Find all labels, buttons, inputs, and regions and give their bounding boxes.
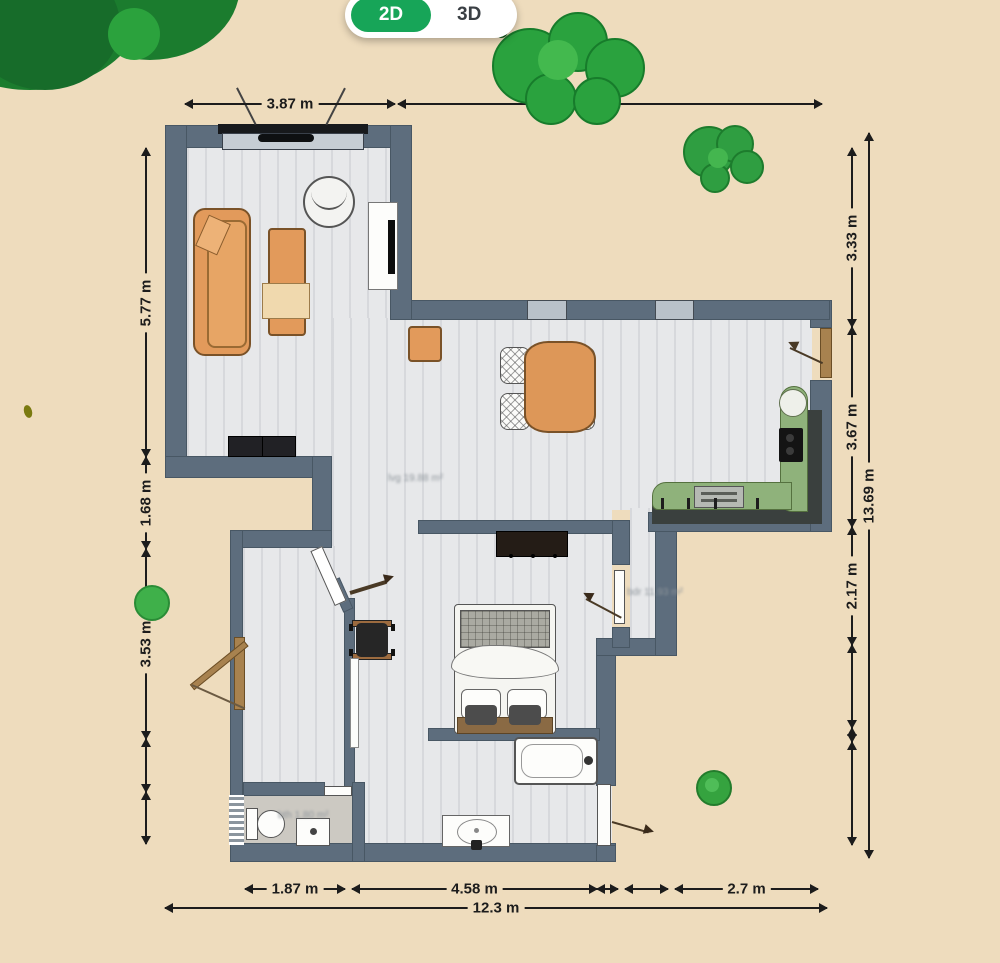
wc-sink[interactable] <box>296 818 330 846</box>
tree-corner-highlight <box>108 8 160 60</box>
wall-bedroom-right-a <box>612 520 630 565</box>
door-entrance-arrow <box>643 824 660 838</box>
dim-left-4 <box>145 739 147 792</box>
bush-left[interactable] <box>134 585 170 621</box>
office-chair-wheel-2 <box>391 624 395 631</box>
door-entrance[interactable] <box>597 784 611 846</box>
dim-bottom-3 <box>597 888 618 890</box>
cabinet-handle-4 <box>756 498 759 509</box>
coffee-bench[interactable] <box>268 228 306 336</box>
dresser-knob-3 <box>553 554 557 558</box>
dim-left-5 <box>145 792 147 844</box>
room-label-living: lvg 19.88 m² <box>388 473 443 484</box>
vanity-sink[interactable] <box>442 815 510 847</box>
tree-top-blob-5 <box>573 77 621 125</box>
dim-right-total: 13.69 m <box>868 133 870 858</box>
dim-left-2: 1.68 m <box>145 457 147 549</box>
toggle-option-2d[interactable]: 2D <box>351 0 431 32</box>
dim-right-2: 3.67 m <box>851 327 853 527</box>
swivel-chair-curve <box>311 190 347 210</box>
sideboard-divider <box>262 437 263 456</box>
tree-right-blob-3 <box>730 150 764 184</box>
dim-left-1: 5.77 m <box>145 148 147 457</box>
bathtub-inner <box>521 744 583 778</box>
dim-bottom-5: 2.7 m <box>675 888 818 890</box>
wall-right-lower-a <box>596 648 616 786</box>
door-balcony[interactable] <box>820 328 832 378</box>
wall-office-top <box>230 530 332 548</box>
window-wc[interactable] <box>229 795 244 845</box>
tree-top-highlight <box>538 40 578 80</box>
window-opening-line-left <box>236 88 256 125</box>
bathtub-faucet <box>584 756 593 765</box>
vanity-drain <box>474 828 479 833</box>
toggle-option-3d[interactable]: 3D <box>457 4 481 26</box>
door-wc[interactable] <box>324 786 352 796</box>
wall-bottom <box>230 843 616 862</box>
appliance-vent <box>701 492 737 495</box>
dim-right-1: 3.33 m <box>851 148 853 327</box>
cabinet-handle-1 <box>661 498 664 509</box>
dining-table[interactable] <box>524 341 596 433</box>
dresser-knob-1 <box>509 554 513 558</box>
wall-notch-vertical <box>655 512 677 656</box>
bathtub[interactable] <box>514 737 598 785</box>
dim-top-width: 3.87 m <box>185 103 395 105</box>
dim-right-5 <box>851 728 853 742</box>
dim-bottom-1: 1.87 m <box>245 888 345 890</box>
room-label-wc: bth 1.80 m² <box>278 810 329 821</box>
office-chair-wheel-4 <box>391 649 395 656</box>
tree-corner-blob-3 <box>0 0 120 90</box>
kitchen-sink[interactable] <box>779 389 807 417</box>
swivel-chair[interactable] <box>303 176 355 228</box>
tree-top-blob-4 <box>525 73 577 125</box>
wc-sink-tap <box>310 828 317 835</box>
bed-cushion-right <box>509 705 541 725</box>
burner-2 <box>786 447 794 455</box>
office-chair-wheel-3 <box>349 649 353 656</box>
wall-right-lower-b <box>596 845 616 862</box>
cabinet-handle-3 <box>714 498 717 509</box>
dim-right-3: 2.17 m <box>851 527 853 645</box>
kitchen-appliance[interactable] <box>694 486 744 508</box>
vanity-tap <box>471 840 482 850</box>
office-chair-seat <box>356 623 388 657</box>
cooktop[interactable] <box>779 428 803 462</box>
dim-right-4 <box>851 645 853 728</box>
bench-tray[interactable] <box>262 283 310 319</box>
dim-left-3: 3.53 m <box>145 549 147 739</box>
window-opening-line-right <box>325 88 345 125</box>
view-mode-toggle: 2D 3D <box>345 0 517 38</box>
wall-living-left <box>165 125 187 478</box>
office-chair-wheel-1 <box>349 624 353 631</box>
cabinet-handle-2 <box>687 498 690 509</box>
window-dining-1[interactable] <box>527 300 567 320</box>
curtain-rail[interactable] <box>258 134 314 142</box>
dim-right-6 <box>851 742 853 845</box>
office-chair[interactable] <box>352 618 392 662</box>
sofa[interactable] <box>193 208 251 356</box>
bush-bottom-right[interactable] <box>696 770 732 806</box>
dim-bottom-2: 4.58 m <box>352 888 597 890</box>
door-leaf-folded[interactable] <box>350 658 359 748</box>
dresser-knob-2 <box>531 554 535 558</box>
floorplan-canvas: lvg 19.88 m² bdr 11.93 m² bth 1.80 m² 3.… <box>0 0 1000 963</box>
wall-wc-right <box>352 782 365 862</box>
olive-leaf <box>22 404 33 419</box>
bed-headboard <box>460 610 550 648</box>
bed[interactable] <box>454 604 556 734</box>
dining-side-cabinet[interactable] <box>408 326 442 362</box>
appliance-vent2 <box>701 499 737 502</box>
dim-bottom-4 <box>625 888 668 890</box>
window-dining-2[interactable] <box>655 300 694 320</box>
room-label-bedroom: bdr 11.93 m² <box>627 587 683 598</box>
burner-1 <box>786 434 794 442</box>
bed-cushion-left <box>465 705 497 725</box>
bush-bottom-right-core <box>705 778 719 792</box>
dim-bottom-total: 12.3 m <box>165 907 827 909</box>
wall-dining-top <box>390 300 830 320</box>
wall-bedroom-right-b <box>612 627 630 648</box>
wall-wc-top <box>243 782 325 796</box>
dresser[interactable] <box>496 531 568 557</box>
tv[interactable] <box>388 220 395 274</box>
tree-right-highlight <box>708 148 728 168</box>
sideboard-black[interactable] <box>228 436 296 457</box>
wall-living-bottom <box>165 456 332 478</box>
bed-duvet-fold <box>451 645 559 679</box>
